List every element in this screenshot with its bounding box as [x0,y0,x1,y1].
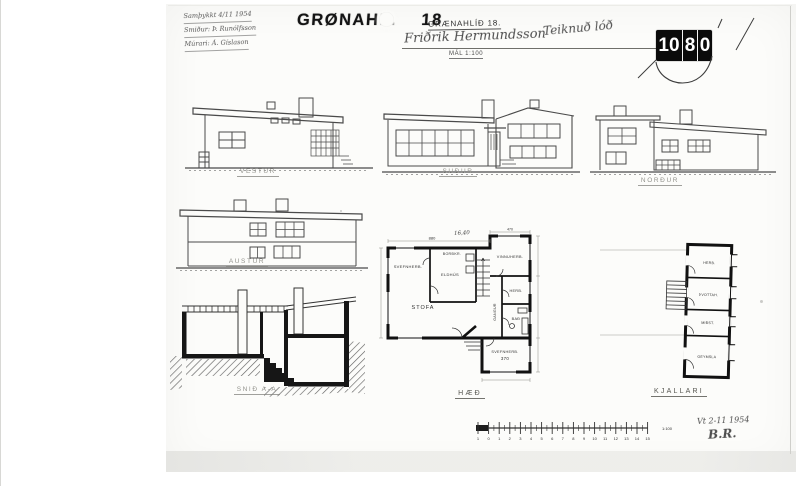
scale-bar: 1 0 1 2 3 4 5 6 7 8 9 10 11 12 13 14 15 … [470,418,680,448]
address-title: GRÆNAHLÍÐ 18. [428,18,501,28]
basement-plan-drawing: HERB. ÞVOTTAH. MIÐST. GEYMSLA [598,232,743,392]
scale-num: 2 [509,436,512,441]
scanned-blueprint-sheet: Samþykkt 4/11 1954 Smiður: Þ. Runólfsson… [0,0,800,486]
elevation-label-west: VESTUR [228,168,288,175]
room-label-eldhus: ELDHÚS [441,272,459,277]
room-label-bad: BAÐ [512,317,521,321]
scale-num: 5 [540,436,543,441]
scale-num: 1 [477,436,480,441]
scale-num: 3 [519,436,522,441]
punch-hole [379,12,394,27]
handwritten-approval-notes: Samþykkt 4/11 1954 Smiður: Þ. Runólfsson… [183,6,306,52]
signature-date: Vt 2-11 1954 [697,415,750,426]
room-dim-370: 370 [501,356,509,361]
scanner-shadow-band [166,451,796,472]
elevation-label-north: NORÐUR [630,177,690,184]
scale-num: 1 [498,436,501,441]
room-label-svefnherb-1: SVEFNHERB. [394,264,423,269]
scale-num: 12 [614,436,619,441]
room-label-stofa: STOFA [412,305,435,311]
basement-plan-label: KJALLARI [644,388,714,395]
scale-num: 4 [530,436,533,441]
basement-room-4: GEYMSLA [697,355,716,360]
dim-wing-top: 470 [507,228,513,232]
floor-plan-label: HÆÐ [448,390,492,397]
basement-room-3: MIÐST. [701,321,714,325]
scale-num: 6 [551,436,554,441]
dim-top-handwritten: 16,40 [454,230,471,237]
room-label-svefnherb-2: SVEFNHERB. [491,350,518,354]
section-label: SNIÐ A-A [222,386,292,393]
room-label-vinnuherb: VINNUHERB. [497,255,523,259]
scale-num: 7 [562,436,565,441]
scale-num: 14 [635,436,640,441]
scale-note-text: MÁL 1:100 [449,51,483,59]
scale-num: 11 [603,436,608,441]
room-label-bordkr: BORÐKR. [443,252,461,256]
scale-num: 8 [572,436,575,441]
scan-speck [760,300,763,303]
pen-marks [600,0,800,110]
basement-room-2: ÞVOTTAH. [699,293,718,298]
scale-num: 13 [624,436,629,441]
approval-line-3: Múrari: Á. Gíslason [184,36,249,52]
scale-num: 9 [583,436,586,441]
reference-lines [600,250,686,335]
scale-num: 0 [487,436,490,441]
scale-num: 15 [645,436,650,441]
room-label-herb: HERB. [509,289,522,293]
elevation-label-east: AUSTUR [212,258,282,265]
scale-ratio: 1:100 [662,426,673,431]
scale-note: MÁL 1:100 [449,51,483,57]
section-drawing [168,286,373,398]
scale-num: 10 [592,436,597,441]
dim-top: 880 [429,236,436,241]
scan-left-edge [0,0,1,486]
floor-plan-drawing: 880 16,40 470 SVEFNHERB. BORÐKR. ELDHÚS … [378,228,563,400]
street-stamp: GRØNAHL. 18 [296,11,443,30]
signature-initials: B.R. [708,426,737,441]
elevation-label-south: SUÐUR [428,168,488,175]
room-label-gangur: GANGUR [493,303,497,321]
basement-room-1: HERB. [703,261,715,265]
